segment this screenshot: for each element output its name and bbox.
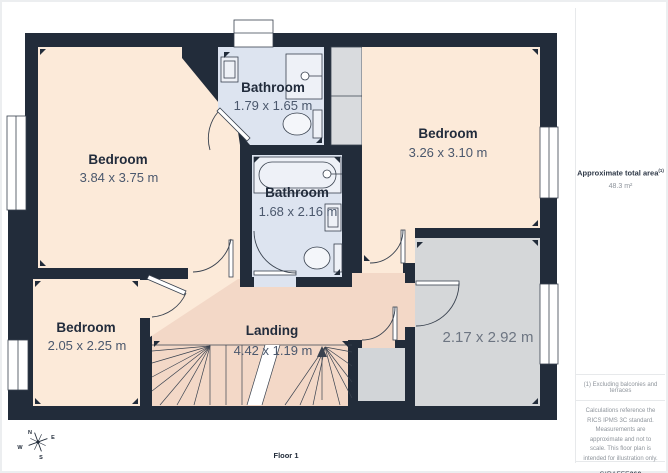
room-label-bedroom-1: Bedroom [88,152,147,167]
bathtub-faucet-icon [323,170,331,178]
room-dims-bathroom-2: 1.68 x 2.16 m [259,204,338,219]
toilet-bathroom-2 [304,247,330,269]
window-top [234,20,273,47]
toilet-tank-bathroom-2 [334,244,342,272]
compass-e-label: E [51,435,55,441]
room-label-bedroom-3: Bedroom [56,320,115,335]
room-label-bathroom-2: Bathroom [265,185,329,200]
compass-s-label: S [39,455,43,461]
window-left-upper [7,116,26,210]
room-dims-bedroom-3: 2.05 x 2.25 m [48,338,127,353]
disclaimer-box: Calculations reference the RICS IPMS 3C … [576,400,665,462]
doorway-bathroom-2 [254,277,296,287]
total-area-label: Approximate total area(1) [576,168,665,178]
doorway-store-room [405,283,415,327]
room-dims-bedroom-2: 3.26 x 3.10 m [409,145,488,160]
total-area-block: Approximate total area(1) 48.3 m² [576,168,665,190]
giraffe360-logo: GIRAFFE360 [583,470,658,473]
doorway-bedroom-2 [362,263,403,273]
doorway-closet [362,340,395,348]
compass-w-label: W [17,445,23,451]
room-dims-bedroom-1: 3.84 x 3.75 m [80,170,159,185]
toilet-tank-bathroom-1 [313,110,322,138]
room-label-bathroom-1: Bathroom [241,80,305,95]
room-label-bedroom-2: Bedroom [418,126,477,141]
room-label-landing: Landing [246,323,299,338]
floorplan-canvas: Bedroom 3.84 x 3.75 m Bathroom 1.79 x 1.… [0,0,668,473]
toilet-bathroom-1 [283,113,311,135]
total-area-value: 48.3 m² [576,183,665,190]
room-dims-bathroom-1: 1.79 x 1.65 m [234,98,313,113]
room-dims-store-room: 2.17 x 2.92 m [443,329,534,346]
total-area-footnote-marker: (1) [658,168,664,173]
door-leaf-store-room [416,281,459,285]
shower-drain-icon [301,72,309,80]
info-sidebar: Approximate total area(1) 48.3 m² (1) Ex… [575,8,665,463]
compass-icon: N E W S [17,429,55,461]
floor-closet [358,348,405,401]
compass-n-label: N [28,430,32,436]
floor-label: Floor 1 [273,451,298,460]
footnote-text: (1) Excluding balconies and terraces [582,382,659,394]
floorplan-page: Bedroom 3.84 x 3.75 m Bathroom 1.79 x 1.… [0,0,668,473]
footnote-box: (1) Excluding balconies and terraces [576,374,665,400]
total-area-label-text: Approximate total area [577,169,658,178]
room-dims-landing: 4.42 x 1.19 m [234,343,313,358]
disclaimer-text: Calculations reference the RICS IPMS 3C … [583,408,657,462]
